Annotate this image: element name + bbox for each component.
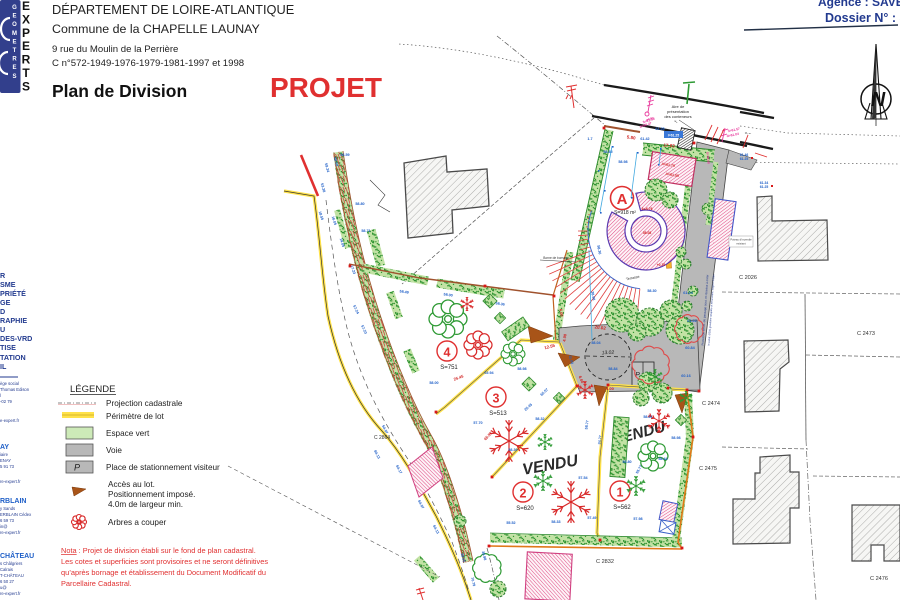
svg-text:S=918 m²: S=918 m² bbox=[614, 210, 636, 216]
svg-text:58.31: 58.31 bbox=[643, 415, 652, 419]
svg-text:e-expert.fr: e-expert.fr bbox=[0, 418, 20, 423]
svg-text:T-CHÂTEAU: T-CHÂTEAU bbox=[0, 573, 24, 578]
svg-text:s Châlgriers: s Châlgriers bbox=[0, 561, 22, 566]
svg-text:Dossier N° : S: Dossier N° : S bbox=[825, 11, 900, 25]
svg-text:61.42: 61.42 bbox=[640, 137, 649, 141]
svg-text:58.08: 58.08 bbox=[643, 231, 652, 235]
svg-text:Nota : Projet de division étab: Nota : Projet de division établi sur le … bbox=[61, 546, 256, 555]
svg-text:CHÂTEAU: CHÂTEAU bbox=[0, 551, 34, 560]
svg-text:DES-VRD: DES-VRD bbox=[0, 334, 32, 343]
svg-text:58.80: 58.80 bbox=[355, 202, 364, 206]
svg-text:I=61.25: I=61.25 bbox=[668, 133, 680, 137]
svg-text:TATION: TATION bbox=[0, 353, 26, 362]
svg-text:4: 4 bbox=[444, 346, 451, 360]
svg-text:E: E bbox=[12, 65, 16, 71]
svg-text:C 2864: C 2864 bbox=[374, 435, 390, 441]
svg-text:S=513: S=513 bbox=[489, 411, 507, 417]
svg-text:C 2473: C 2473 bbox=[857, 331, 875, 337]
svg-text:Projection cadastrale: Projection cadastrale bbox=[106, 399, 183, 408]
svg-text:des conteneurs: des conteneurs bbox=[664, 114, 691, 119]
svg-text:T: T bbox=[22, 66, 30, 80]
svg-text:C 2475: C 2475 bbox=[699, 466, 717, 472]
svg-text:A: A bbox=[617, 191, 628, 208]
svg-text:S=751: S=751 bbox=[440, 365, 458, 371]
svg-text:1.7: 1.7 bbox=[587, 137, 592, 141]
svg-text:A=6.76: A=6.76 bbox=[641, 207, 652, 211]
svg-text:RAPHIE: RAPHIE bbox=[0, 316, 27, 325]
svg-text:58.32: 58.32 bbox=[535, 417, 544, 421]
svg-text:C 2026: C 2026 bbox=[739, 275, 757, 281]
svg-text:Borne de bornage: Borne de bornage bbox=[543, 256, 569, 260]
svg-text:58.84: 58.84 bbox=[608, 367, 618, 371]
svg-text:E: E bbox=[12, 39, 16, 45]
svg-text:58.98: 58.98 bbox=[671, 436, 680, 440]
svg-text:+0.76: +0.76 bbox=[657, 263, 666, 267]
svg-text:Commune de la CHAPELLE LAUNAY: Commune de la CHAPELLE LAUNAY bbox=[52, 22, 260, 36]
svg-text:58.80: 58.80 bbox=[622, 460, 631, 464]
svg-text:58.39: 58.39 bbox=[508, 448, 517, 452]
svg-text:u@: u@ bbox=[0, 585, 7, 590]
svg-text:61.25: 61.25 bbox=[655, 127, 664, 131]
svg-text:58.98: 58.98 bbox=[618, 160, 627, 164]
svg-text:61.24: 61.24 bbox=[683, 291, 693, 295]
svg-text:C 2476: C 2476 bbox=[870, 576, 888, 582]
svg-text:l: l bbox=[0, 393, 1, 398]
svg-text:Place de stationnement visiteu: Place de stationnement visiteur bbox=[106, 463, 220, 472]
svg-text:Agence : SAVENAY: Agence : SAVENAY bbox=[818, 0, 900, 9]
svg-text:C 2474: C 2474 bbox=[702, 401, 720, 407]
svg-text:R: R bbox=[12, 57, 17, 63]
svg-text:4.00: 4.00 bbox=[606, 386, 615, 391]
svg-text:RBLAIN: RBLAIN bbox=[0, 498, 26, 505]
svg-text:M₀.ₙₛ: M₀.ₙₛ bbox=[745, 131, 751, 135]
svg-text:9 rue du Moulin de la Perrière: 9 rue du Moulin de la Perrière bbox=[52, 44, 178, 55]
svg-text:in@: in@ bbox=[0, 524, 8, 529]
svg-text:65.94: 65.94 bbox=[484, 371, 494, 375]
svg-text:IL: IL bbox=[0, 362, 7, 371]
svg-text:Voie: Voie bbox=[106, 446, 122, 455]
svg-text:61.25: 61.25 bbox=[760, 185, 769, 189]
svg-text:60.16: 60.16 bbox=[681, 374, 691, 378]
svg-text:M: M bbox=[12, 31, 17, 37]
svg-text:T: T bbox=[13, 48, 17, 54]
svg-text:Positionnement imposé.: Positionnement imposé. bbox=[108, 490, 195, 499]
svg-text:ège social: ège social bbox=[0, 381, 19, 386]
svg-text:61.25: 61.25 bbox=[740, 157, 749, 161]
svg-text:re-expert.fr: re-expert.fr bbox=[0, 530, 21, 535]
svg-text:P: P bbox=[74, 463, 80, 473]
svg-text:1: 1 bbox=[617, 486, 624, 500]
svg-text:4.0m de largeur min.: 4.0m de largeur min. bbox=[108, 500, 183, 509]
svg-text:AY: AY bbox=[0, 444, 9, 451]
svg-text:N: N bbox=[871, 89, 886, 111]
svg-text:D: D bbox=[0, 307, 5, 316]
svg-text:Poteau d’incendie: Poteau d’incendie bbox=[730, 238, 752, 242]
svg-text:existant: existant bbox=[736, 242, 746, 246]
svg-text:PRIÉTÉ: PRIÉTÉ bbox=[0, 289, 26, 298]
svg-text:6 59 73: 6 59 73 bbox=[0, 518, 15, 523]
svg-text:58.59: 58.59 bbox=[340, 153, 349, 157]
svg-text:60.84: 60.84 bbox=[685, 346, 695, 350]
svg-text:re-expert.fr: re-expert.fr bbox=[0, 479, 21, 484]
svg-text:58.33: 58.33 bbox=[551, 520, 560, 524]
svg-text:Parcellaire Cadastral.: Parcellaire Cadastral. bbox=[61, 579, 132, 588]
svg-text:57.49: 57.49 bbox=[587, 516, 596, 520]
svg-text:3: 3 bbox=[493, 392, 500, 406]
svg-text:Arbres a couper: Arbres a couper bbox=[108, 518, 167, 527]
svg-text:57.70: 57.70 bbox=[473, 421, 482, 425]
svg-text:58.44: 58.44 bbox=[658, 457, 668, 461]
svg-text:Périmètre de lot: Périmètre de lot bbox=[106, 412, 165, 421]
svg-text:6 50 27: 6 50 27 bbox=[0, 579, 15, 584]
svg-text:Accès au lot.: Accès au lot. bbox=[108, 480, 155, 489]
svg-text:PROJET: PROJET bbox=[270, 72, 382, 103]
svg-text:E: E bbox=[12, 14, 16, 20]
svg-text:Les cotes et superficies sont: Les cotes et superficies sont provisoire… bbox=[61, 557, 268, 566]
svg-text:-02 79: -02 79 bbox=[0, 399, 13, 404]
svg-text:DÉPARTEMENT DE LOIRE-ATLANTIQU: DÉPARTEMENT DE LOIRE-ATLANTIQUE bbox=[52, 2, 294, 17]
svg-text:Thomas Edison: Thomas Edison bbox=[0, 387, 30, 392]
svg-text:ENAY: ENAY bbox=[0, 458, 11, 463]
svg-text:TISE: TISE bbox=[0, 343, 16, 352]
svg-text:S=562: S=562 bbox=[613, 505, 631, 511]
svg-text:iaire: iaire bbox=[0, 452, 9, 457]
svg-text:O: O bbox=[12, 22, 17, 28]
svg-text:S: S bbox=[12, 74, 16, 80]
svg-text:SME: SME bbox=[0, 280, 16, 289]
svg-text:17.03: 17.03 bbox=[663, 143, 675, 149]
svg-text:U: U bbox=[0, 325, 5, 334]
svg-text:qu’après bornage et établissem: qu’après bornage et établissement du Doc… bbox=[61, 568, 266, 577]
svg-text:y Sands: y Sands bbox=[0, 506, 15, 511]
svg-text:E: E bbox=[22, 39, 30, 53]
svg-text:P: P bbox=[22, 26, 30, 40]
svg-text:E: E bbox=[22, 0, 30, 13]
svg-text:C 2832: C 2832 bbox=[596, 559, 614, 565]
svg-text:Plan de Division: Plan de Division bbox=[52, 81, 187, 101]
svg-text:55.52: 55.52 bbox=[506, 521, 515, 525]
svg-text:ERBLAIN Cédex: ERBLAIN Cédex bbox=[0, 512, 32, 517]
svg-text:13.02: 13.02 bbox=[602, 350, 615, 357]
svg-text:X: X bbox=[22, 12, 30, 26]
svg-text:Espace vert: Espace vert bbox=[106, 429, 150, 438]
svg-text:61.02: 61.02 bbox=[687, 319, 697, 323]
svg-text:58.71: 58.71 bbox=[361, 229, 370, 233]
svg-text:S: S bbox=[22, 79, 30, 93]
svg-text:5 91 73: 5 91 73 bbox=[0, 464, 15, 469]
svg-text:C n°572-1949-1976-1979-1981-19: C n°572-1949-1976-1979-1981-1997 et 1998 bbox=[52, 58, 244, 69]
svg-text:G: G bbox=[12, 5, 17, 11]
svg-text:58.30: 58.30 bbox=[647, 289, 656, 293]
svg-text:57.98: 57.98 bbox=[633, 517, 642, 521]
svg-text:LÉGENDE: LÉGENDE bbox=[70, 384, 115, 395]
svg-text:57.54: 57.54 bbox=[578, 476, 588, 480]
svg-text:2: 2 bbox=[520, 487, 527, 501]
svg-text:Calrais: Calrais bbox=[0, 567, 13, 572]
svg-text:R: R bbox=[22, 53, 31, 67]
svg-text:58.04: 58.04 bbox=[591, 341, 601, 345]
svg-text:58.98: 58.98 bbox=[517, 367, 526, 371]
svg-text:re-expert.fr: re-expert.fr bbox=[0, 591, 21, 596]
svg-text:58.00: 58.00 bbox=[429, 381, 438, 385]
svg-text:R: R bbox=[0, 271, 6, 280]
svg-text:S=620: S=620 bbox=[516, 506, 534, 512]
svg-text:GE: GE bbox=[0, 298, 11, 307]
